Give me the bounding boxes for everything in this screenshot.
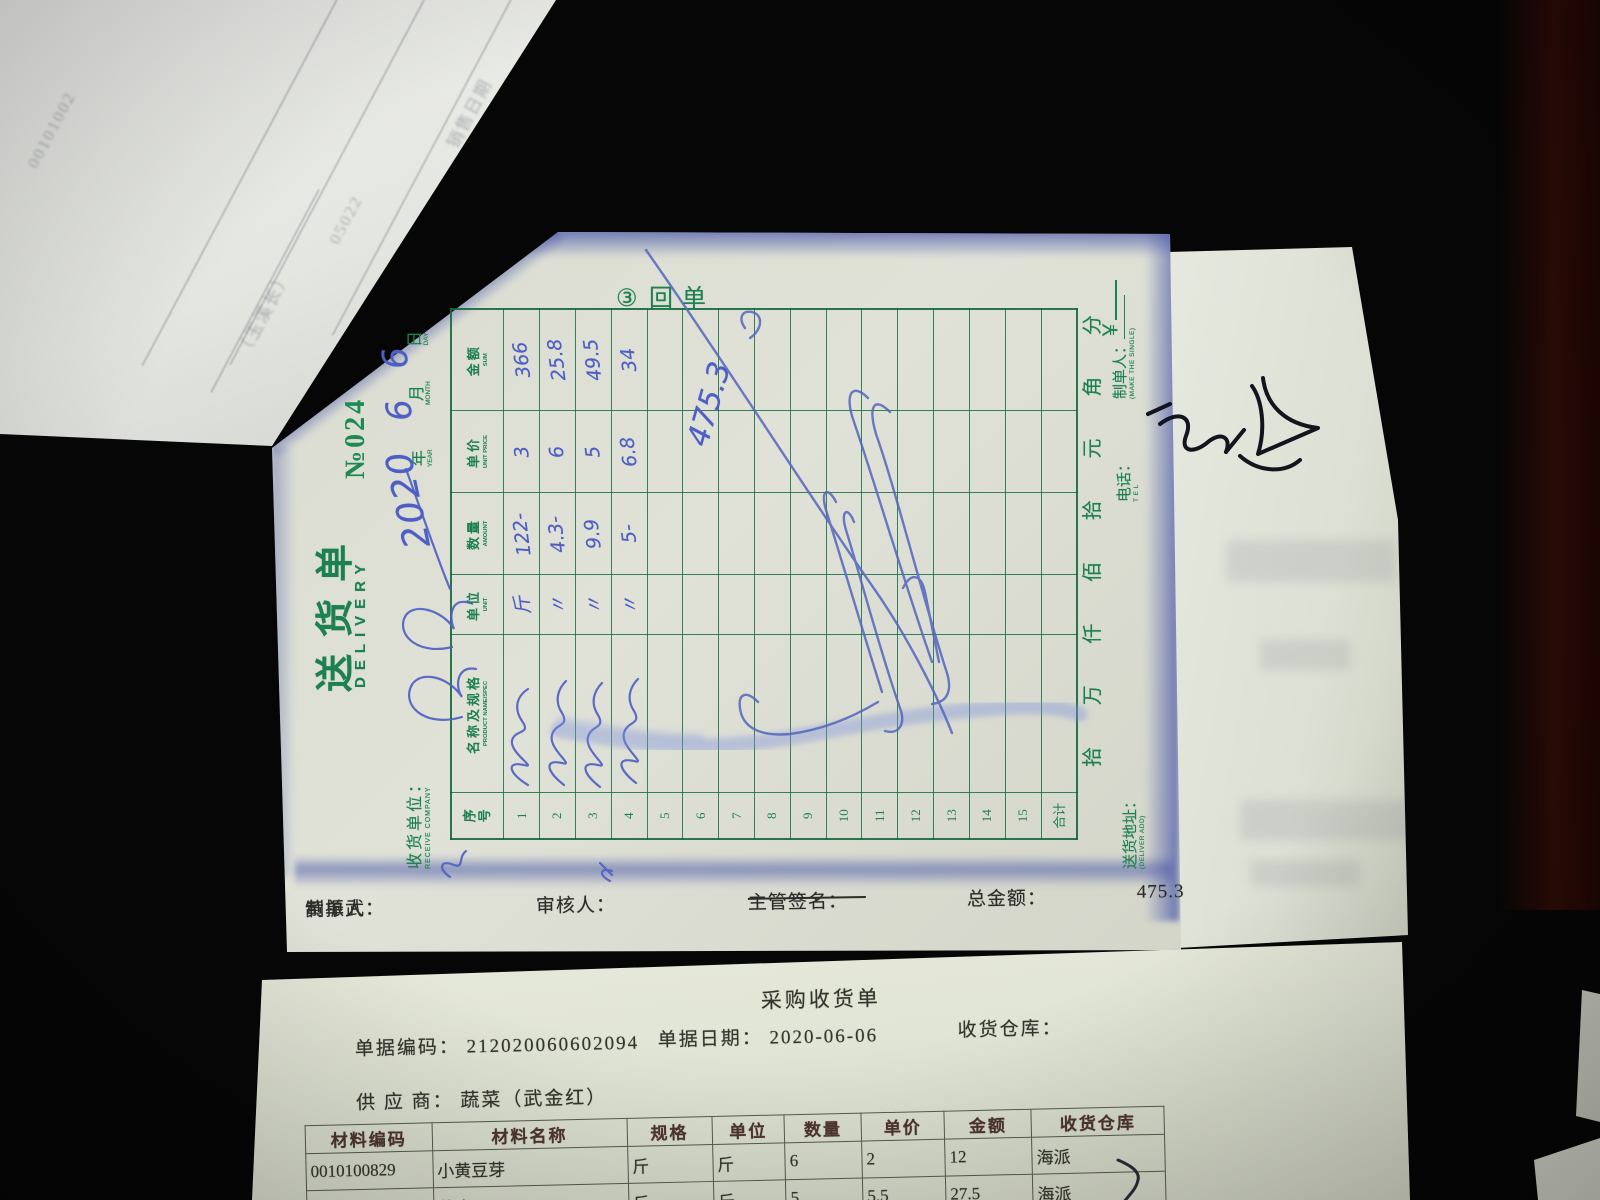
row-unit: [1005, 575, 1041, 635]
delivery-items-table: 序号名称及规格PRODUCT NAME/SPEC单位UNIT数量AMOUNT单价…: [450, 308, 1078, 840]
row-unit: 〃: [611, 575, 647, 635]
receipt-cell: 0010100829: [306, 1151, 433, 1191]
row-qty: [790, 493, 826, 575]
row-number: 12: [898, 793, 934, 839]
receipt-cell: 小黄豆芽: [432, 1146, 628, 1187]
year-en: YEAR: [428, 449, 435, 467]
row-sum: 25.8: [540, 309, 576, 411]
dform-col-header: 序号: [451, 793, 504, 839]
row-unit: [647, 575, 683, 635]
row-name-cell: [754, 635, 790, 793]
dform-row: 8: [754, 309, 790, 839]
row-name-cell: [575, 635, 611, 793]
receipt-cell: 斤: [627, 1144, 713, 1183]
purchase-receipt: 采购收货单 单据编码： 212020060602094 单据日期： 2020-0…: [268, 942, 1423, 1200]
day-en: DAY: [424, 331, 431, 347]
ghost-text: 销售日期: [439, 73, 497, 152]
row-price: 6: [540, 411, 576, 493]
row-sum: [754, 309, 790, 411]
receipt-cell: 2: [862, 1139, 946, 1178]
doc-date-label: 单据日期：: [658, 1028, 763, 1051]
dform-row: 1 斤 122- 3 366: [504, 309, 540, 839]
row-number: 9: [790, 793, 826, 839]
row-price: 6.8: [611, 411, 647, 493]
background-red-object: [1498, 0, 1600, 910]
no-digits: 024: [340, 397, 371, 448]
warehouse-label: 收货仓库：: [957, 1013, 1063, 1042]
row-sum: [969, 309, 1005, 411]
row-price: 5: [575, 411, 611, 493]
row-price: [1041, 411, 1077, 493]
row-qty: [934, 493, 970, 575]
paper-scrap-corner: [1528, 1136, 1600, 1200]
deliver-address-label: 送货地址： (DELIVER ADD): [1124, 794, 1147, 869]
ghost-text: （玉溪长）: [229, 265, 296, 361]
row-price: 3: [504, 411, 540, 493]
maker-underline: [1114, 295, 1125, 339]
maker-cn-text: 制单人：: [1113, 339, 1129, 399]
under-sheet-right: [1160, 240, 1415, 965]
row-unit: [862, 575, 898, 635]
receipt-cell: 6: [785, 1141, 863, 1180]
row-price: [1005, 411, 1041, 493]
dform-col-header: 单价UNIT PRICE: [451, 411, 504, 493]
row-unit: [790, 575, 826, 635]
row-price: [969, 411, 1005, 493]
deliver-address-en: (DELIVER ADD): [1140, 794, 1147, 869]
row-unit: [1041, 575, 1077, 635]
receipt-cell: 001010083: [307, 1188, 434, 1200]
row-qty: [898, 493, 934, 575]
amount-word-char: 元: [1076, 438, 1105, 458]
row-qty: [826, 493, 862, 575]
paper-scrap-sliver: [1574, 990, 1600, 1122]
dform-row: 4 〃 5- 6.8 34: [611, 309, 647, 839]
row-qty: [1005, 493, 1041, 575]
ghost-text: 05022: [325, 192, 367, 248]
copy-stamp-char: 单: [682, 287, 706, 311]
row-sum: 34: [611, 309, 647, 411]
row-number: 13: [934, 793, 970, 839]
receive-company-cn: 收货单位：: [408, 774, 425, 869]
dform-row: 14: [969, 309, 1005, 839]
supplier-line: 供 应 商： 蔬菜（武金红）: [356, 1082, 608, 1115]
row-qty: [969, 493, 1005, 575]
row-sum: [1005, 309, 1041, 411]
row-unit: [719, 575, 755, 635]
amount-word-char: 角: [1076, 377, 1105, 397]
dform-col-header: 数量AMOUNT: [451, 493, 504, 575]
dform-row: 12: [898, 309, 934, 839]
dform-row: 10: [826, 309, 862, 839]
dform-col-header: 单位UNIT: [451, 575, 504, 635]
amount-word-char: 仟: [1076, 624, 1105, 644]
row-unit: 〃: [575, 575, 611, 635]
row-unit: [683, 575, 719, 635]
dform-row: 13: [934, 309, 970, 839]
form-maker-cn: 制单人：: [1114, 295, 1130, 399]
receipt-cell: 海派: [1032, 1134, 1166, 1174]
dform-col-header: 金额SUM: [451, 309, 504, 411]
doc-date-line: 单据日期： 2020-06-06: [657, 1020, 878, 1052]
row-name-cell: [611, 635, 647, 793]
row-name-cell: [683, 635, 719, 793]
row-sum: [934, 309, 970, 411]
row-qty: [719, 493, 755, 575]
amount-word-char: 万: [1076, 685, 1105, 705]
supplier-value: 蔬菜（武金红）: [460, 1087, 607, 1111]
amount-word-char: 佰: [1076, 562, 1105, 582]
footer-auditor: 审核人：: [536, 890, 616, 918]
row-unit: [898, 575, 934, 635]
row-unit: [826, 575, 862, 635]
dform-row: 3 〃 9.9 5 49.5: [575, 309, 611, 839]
amount-words-row: 拾万仟佰拾元角分: [1076, 315, 1105, 767]
row-price: [934, 411, 970, 493]
row-number: 15: [1005, 793, 1041, 839]
row-name-cell: [898, 635, 934, 793]
row-name-cell: [826, 635, 862, 793]
row-qty: [754, 493, 790, 575]
tel-en: T E L: [1134, 457, 1141, 502]
ghost-text: 00101002: [23, 88, 80, 172]
doc-no-label: 单据编码：: [355, 1037, 460, 1060]
row-qty: 9.9: [575, 493, 611, 575]
row-price: [826, 411, 862, 493]
dform-row: 11: [862, 309, 898, 839]
manager-sign-underline: [748, 886, 866, 900]
dform-row: 15: [1005, 309, 1041, 839]
form-maker-en: (MAKE THE SINGLE): [1130, 295, 1137, 399]
stray-ink-mark: [442, 851, 466, 877]
dform-row: 合计: [1041, 309, 1077, 839]
copy-stamp: ③回单: [616, 287, 706, 311]
form-serial-number: №024: [340, 397, 372, 479]
row-number: 3: [575, 793, 611, 839]
row-sum: [826, 309, 862, 411]
receipt-col-header: 收货仓库: [1031, 1106, 1164, 1137]
bleed-through-mark: [1260, 640, 1350, 670]
row-sum: [1041, 309, 1077, 411]
row-price: [898, 411, 934, 493]
row-price: [647, 411, 683, 493]
receipt-col-header: 金额: [944, 1109, 1032, 1139]
row-number: 1: [504, 793, 540, 839]
amount-word-char: 拾: [1076, 500, 1105, 520]
row-number: 2: [540, 793, 576, 839]
row-number: 14: [969, 793, 1005, 839]
row-number: 7: [719, 793, 755, 839]
carbon-smudge-left: [271, 447, 295, 877]
receipt-cell: 27.5: [945, 1174, 1033, 1200]
receipt-col-header: 数量: [784, 1113, 861, 1143]
row-name-cell: [1005, 635, 1041, 793]
row-qty: [862, 493, 898, 575]
row-name-cell: [504, 635, 540, 793]
row-sum: [790, 309, 826, 411]
row-qty: [1041, 493, 1077, 575]
row-price: [754, 411, 790, 493]
row-name-cell: [1041, 635, 1077, 793]
handwritten-month: 6: [379, 397, 422, 424]
no-symbol: №: [340, 448, 371, 479]
tel-label: 电话： T E L: [1118, 457, 1141, 502]
row-sum: [862, 309, 898, 411]
row-qty: 4.3-: [540, 493, 576, 575]
supplier-label: 供 应 商：: [356, 1091, 454, 1114]
row-qty: [683, 493, 719, 575]
dform-col-header: 名称及规格PRODUCT NAME/SPEC: [451, 635, 504, 793]
doc-no-value: 212020060602094: [466, 1033, 639, 1058]
row-number: 8: [754, 793, 790, 839]
row-number: 11: [862, 793, 898, 839]
amount-word-char: 拾: [1076, 747, 1105, 767]
footer-total-value: 475.3: [1137, 881, 1185, 904]
form-title-en: DELIVERY: [352, 558, 369, 688]
row-unit: 〃: [540, 575, 576, 635]
form-maker-label: 制单人： (MAKE THE SINGLE): [1114, 295, 1137, 399]
row-unit: [754, 575, 790, 635]
copy-stamp-char: 回: [649, 287, 673, 311]
row-name-cell: [934, 635, 970, 793]
row-sum: [647, 309, 683, 411]
row-unit: [934, 575, 970, 635]
bleed-through-mark: [1240, 800, 1420, 840]
row-number: 5: [647, 793, 683, 839]
dform-row: 9: [790, 309, 826, 839]
row-name-cell: [540, 635, 576, 793]
receipt-cell: 海派: [1033, 1171, 1167, 1200]
row-qty: [647, 493, 683, 575]
row-price: [790, 411, 826, 493]
receipt-cell: 斤: [713, 1180, 786, 1200]
receipt-cell: 斤: [628, 1181, 714, 1200]
receipt-cell: 12: [945, 1137, 1033, 1176]
dform-row: 5: [647, 309, 683, 839]
bleed-through-mark: [1226, 540, 1396, 582]
photo-stage: 00101002 销售日期 （玉溪长） 05022 送货单 DELIVERY №…: [0, 0, 1600, 1200]
row-name-cell: [790, 635, 826, 793]
row-number: 10: [826, 793, 862, 839]
dform-header-row: 序号名称及规格PRODUCT NAME/SPEC单位UNIT数量AMOUNT单价…: [451, 309, 504, 839]
month-en: MONTH: [426, 381, 433, 405]
receipt-col-header: 单价: [861, 1111, 945, 1141]
stray-ink-mark: [600, 863, 612, 881]
row-number: 合计: [1041, 793, 1077, 839]
row-unit: 斤: [504, 575, 540, 635]
handwritten-day: 6: [375, 345, 417, 371]
receipt-col-header: 规格: [627, 1116, 713, 1146]
bleed-through-mark: [1250, 860, 1360, 886]
row-number: 4: [611, 793, 647, 839]
doc-date-value: 2020-06-06: [769, 1025, 878, 1048]
row-name-cell: [647, 635, 683, 793]
deliver-address-cn: 送货地址：: [1124, 794, 1140, 869]
receive-company-en: RECEIVE COMPANY: [425, 774, 432, 869]
row-name-cell: [719, 635, 755, 793]
doc-no-line: 单据编码： 212020060602094: [355, 1028, 640, 1061]
row-qty: 122-: [504, 493, 540, 575]
receipt-cell: 斤: [712, 1143, 785, 1182]
receipt-items-table: 材料编码材料名称规格单位数量单价金额收货仓库0010100829小黄豆芽斤斤62…: [305, 1106, 1167, 1200]
row-price: [719, 411, 755, 493]
receipt-title: 采购收货单: [761, 982, 882, 1015]
receipt-col-header: 单位: [712, 1115, 785, 1145]
tel-cn: 电话：: [1118, 457, 1134, 502]
row-name-cell: [969, 635, 1005, 793]
row-price: [862, 411, 898, 493]
footer-total-label: 总金额：: [967, 883, 1047, 911]
dform-row: 2 〃 4.3- 6 25.8: [540, 309, 576, 839]
row-unit: [969, 575, 1005, 635]
row-number: 6: [683, 793, 719, 839]
receipt-cell: 5.5: [862, 1176, 946, 1200]
receipt-col-header: 材料名称: [432, 1118, 628, 1150]
receive-company-label: 收货单位： RECEIVE COMPANY: [408, 774, 432, 869]
copy-stamp-char: ③: [616, 287, 640, 311]
footer-maker-name: 黄振武: [305, 894, 365, 922]
delivery-form-rotated: 送货单 DELIVERY №024 收货单位： RECEIVE COMPANY …: [300, 245, 1180, 885]
receipt-col-header: 材料编码: [305, 1123, 432, 1154]
row-sum: 49.5: [575, 309, 611, 411]
row-name-cell: [862, 635, 898, 793]
form-title: 送货单: [304, 527, 359, 692]
row-sum: 366: [504, 309, 540, 411]
row-qty: 5-: [611, 493, 647, 575]
receipt-cell: 5: [786, 1178, 864, 1200]
row-sum: [898, 309, 934, 411]
